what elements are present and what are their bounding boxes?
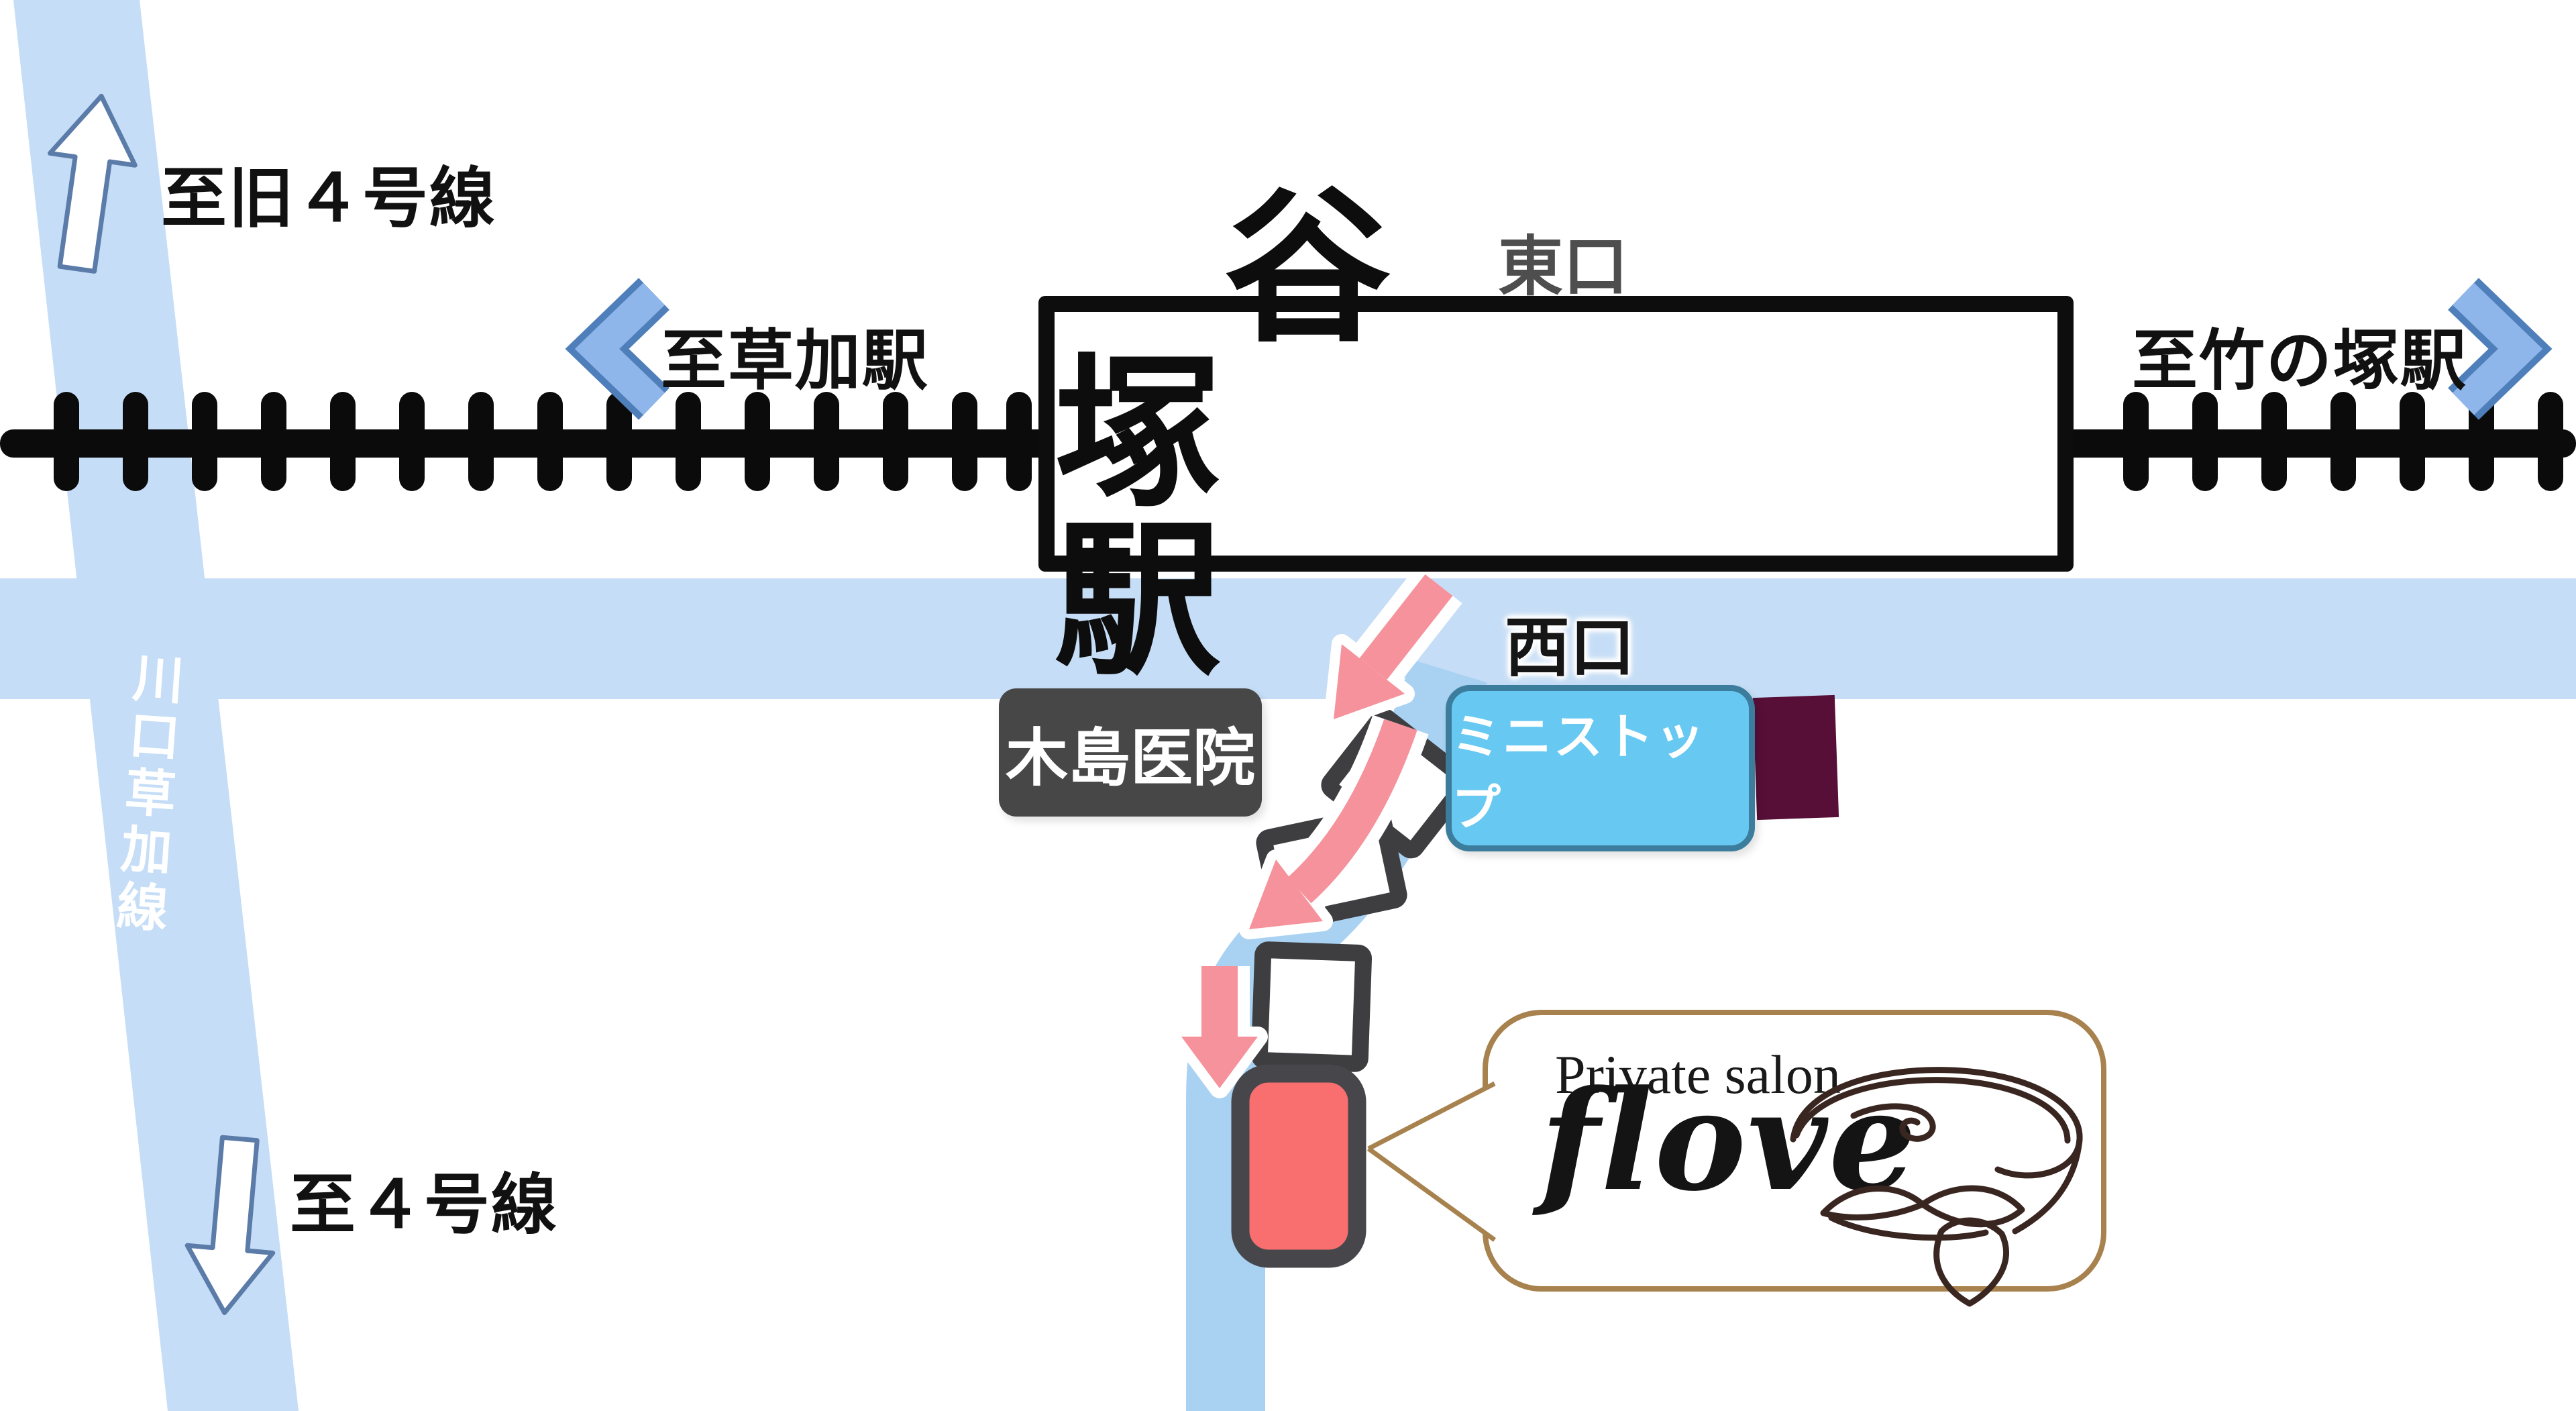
salon-bubble: Private salon flove xyxy=(1483,1010,2106,1292)
label-to-takenotsuka-station: 至竹の塚駅 xyxy=(2132,307,2467,403)
dark-building xyxy=(1753,695,1839,820)
chevron-right-icon xyxy=(2463,294,2520,404)
label-to-route4: 至４号線 xyxy=(290,1151,558,1247)
west-exit-label: 西口 xyxy=(1456,594,1684,689)
label-to-old-route4: 至旧４号線 xyxy=(161,145,496,240)
clinic-label: 木島医院 xyxy=(1006,707,1255,798)
chevron-left-icon xyxy=(597,294,654,404)
clinic-box: 木島医院 xyxy=(999,688,1262,817)
convenience-store-box: ミニストップ xyxy=(1446,685,1755,851)
convenience-store-label: ミニストップ xyxy=(1452,697,1749,839)
station-box: 谷 塚 駅 xyxy=(1038,296,2074,572)
salon-name: flove xyxy=(1540,1061,1918,1222)
label-to-soka-station: 至草加駅 xyxy=(661,307,929,403)
salon-location-marker xyxy=(1240,1074,1357,1259)
access-map: 至旧４号線 至草加駅 至竹の塚駅 至４号線 東口 谷 塚 駅 西口 川口草加線 … xyxy=(0,0,2576,1411)
